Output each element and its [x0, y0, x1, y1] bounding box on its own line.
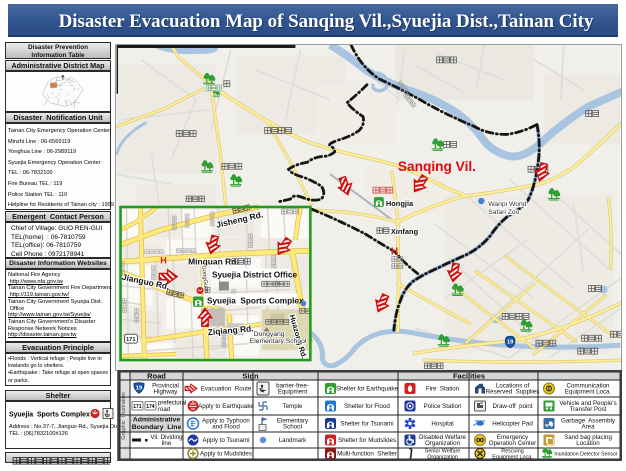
svg-text:Police Station: Police Station: [424, 403, 462, 410]
svg-text:Sanqing Vil.: Sanqing Vil.: [398, 159, 476, 174]
svg-text:Road: Road: [147, 371, 166, 380]
svg-text:Reserved Supplies: Reserved Supplies: [486, 389, 540, 396]
svg-text:171: 171: [133, 404, 142, 410]
svg-text:School: School: [283, 424, 302, 431]
svg-text:Shelter for Earthquake: Shelter for Earthquake: [336, 386, 398, 393]
svg-text:Hospital: Hospital: [431, 421, 453, 428]
svg-text:Syuejia District Office: Syuejia District Office: [212, 271, 298, 280]
svg-text:Inundation Detector Sensor: Inundation Detector Sensor: [554, 452, 617, 458]
svg-text:171: 171: [126, 337, 136, 343]
svg-text:Equipment Loca.: Equipment Loca.: [492, 454, 532, 460]
svg-text:Dongyang: Dongyang: [254, 331, 285, 338]
svg-text:Area: Area: [581, 424, 595, 431]
svg-text:Apply to Earthquake: Apply to Earthquake: [198, 403, 254, 410]
svg-text:Equipment: Equipment: [278, 389, 308, 396]
svg-text:Syuejia Sports Complex: Syuejia Sports Complex: [207, 296, 304, 305]
svg-text:Transfer Post: Transfer Post: [570, 406, 607, 413]
svg-text:Apply to Tsunami: Apply to Tsunami: [202, 437, 249, 444]
svg-text:Organization: Organization: [427, 454, 458, 460]
svg-text:Highway: Highway: [154, 389, 179, 396]
svg-text:Operation Center: Operation Center: [489, 440, 536, 447]
svg-text:Sign: Sign: [242, 371, 259, 380]
svg-text:Facilities: Facilities: [453, 371, 485, 380]
svg-text:Safari Zoo: Safari Zoo: [488, 209, 519, 216]
svg-text:Minquan Rd.: Minquan Rd.: [188, 257, 239, 267]
svg-text:Landmark: Landmark: [279, 437, 307, 444]
svg-text:Shelter for Flood: Shelter for Flood: [344, 403, 390, 410]
svg-text:111: 111: [274, 281, 282, 287]
svg-text:line: line: [162, 440, 172, 447]
svg-text:Shelter for Mudslides: Shelter for Mudslides: [338, 437, 396, 444]
svg-text:Wanpi World: Wanpi World: [488, 201, 527, 208]
svg-text:Location: Location: [576, 440, 600, 447]
svg-text:Draw-off point: Draw-off point: [492, 403, 532, 410]
svg-text:Hongjia: Hongjia: [386, 199, 414, 208]
svg-text:H: H: [160, 256, 166, 266]
svg-text:Administrative: Administrative: [133, 417, 180, 424]
svg-text:Multi-function Shelter: Multi-function Shelter: [337, 451, 397, 458]
svg-text:19: 19: [507, 339, 513, 345]
svg-text:prefectural: prefectural: [158, 401, 186, 407]
svg-text:Fire Station: Fire Station: [426, 386, 460, 393]
svg-text:and Flood: and Flood: [212, 424, 240, 431]
svg-text:Helicopter Pad: Helicopter Pad: [492, 421, 533, 428]
svg-text:H: H: [391, 247, 398, 258]
svg-text:road: road: [158, 407, 170, 413]
svg-text:Evacuation Route: Evacuation Route: [201, 386, 252, 393]
svg-text:Equipment Loca.: Equipment Loca.: [565, 389, 612, 396]
svg-text:Elementary School: Elementary School: [250, 338, 307, 345]
svg-text:Shelter for Tsunami: Shelter for Tsunami: [340, 421, 393, 428]
svg-text:174: 174: [146, 404, 155, 410]
svg-text:Xinfang: Xinfang: [391, 227, 419, 236]
svg-text:Apply to Mudslides: Apply to Mudslides: [200, 451, 252, 458]
svg-text:Organization: Organization: [425, 440, 461, 447]
svg-text:Temple: Temple: [283, 403, 304, 410]
svg-text:19: 19: [136, 385, 143, 391]
svg-text:Graphic Illustration: Graphic Illustration: [121, 392, 127, 439]
svg-text:Boundary Line: Boundary Line: [132, 424, 182, 431]
